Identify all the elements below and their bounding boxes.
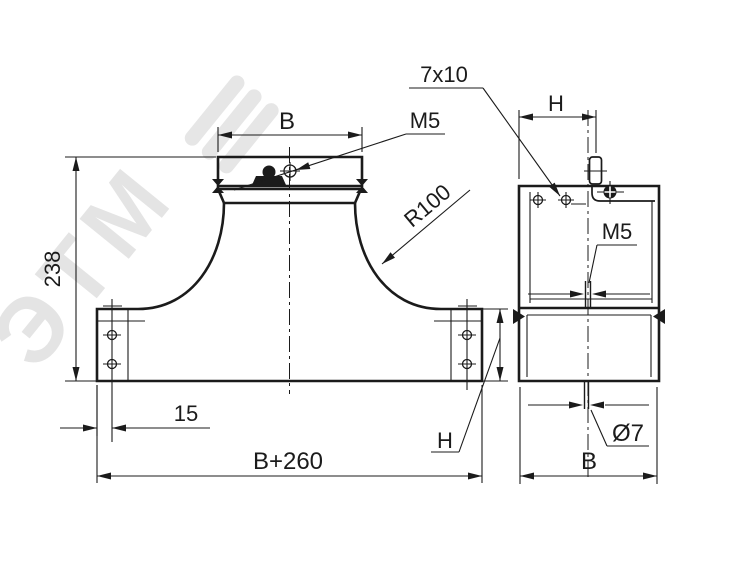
dim-offset-label: 15 bbox=[174, 401, 198, 426]
dim-b-side-label: B bbox=[581, 448, 597, 475]
dim-h-front-label: H bbox=[437, 428, 453, 453]
dim-h-side: H bbox=[519, 91, 596, 179]
dim-offset: 15 bbox=[60, 385, 210, 436]
dim-m5-side-label: M5 bbox=[602, 219, 633, 244]
dim-m5-front-label: M5 bbox=[410, 108, 441, 133]
dim-m5-side: M5 bbox=[589, 219, 637, 283]
dim-hole-dia: Ø7 bbox=[591, 410, 649, 447]
technical-drawing: ЭТМ bbox=[0, 0, 739, 567]
dim-total-width: B+260 bbox=[97, 385, 482, 483]
dim-b-top-label: B bbox=[279, 108, 295, 135]
dim-hole-dia-label: Ø7 bbox=[612, 420, 644, 447]
dim-height-label: 238 bbox=[40, 251, 65, 288]
dim-b-top: B bbox=[218, 108, 362, 152]
dim-total-width-label: B+260 bbox=[253, 448, 323, 475]
dim-h-side-label: H bbox=[548, 91, 564, 116]
dim-slot-label: 7x10 bbox=[420, 62, 468, 87]
dim-radius: R100 bbox=[382, 179, 470, 264]
dimensions: B M5 7x10 H bbox=[40, 62, 657, 484]
drawing-canvas: B M5 7x10 H bbox=[0, 0, 739, 567]
dim-radius-label: R100 bbox=[399, 179, 455, 232]
